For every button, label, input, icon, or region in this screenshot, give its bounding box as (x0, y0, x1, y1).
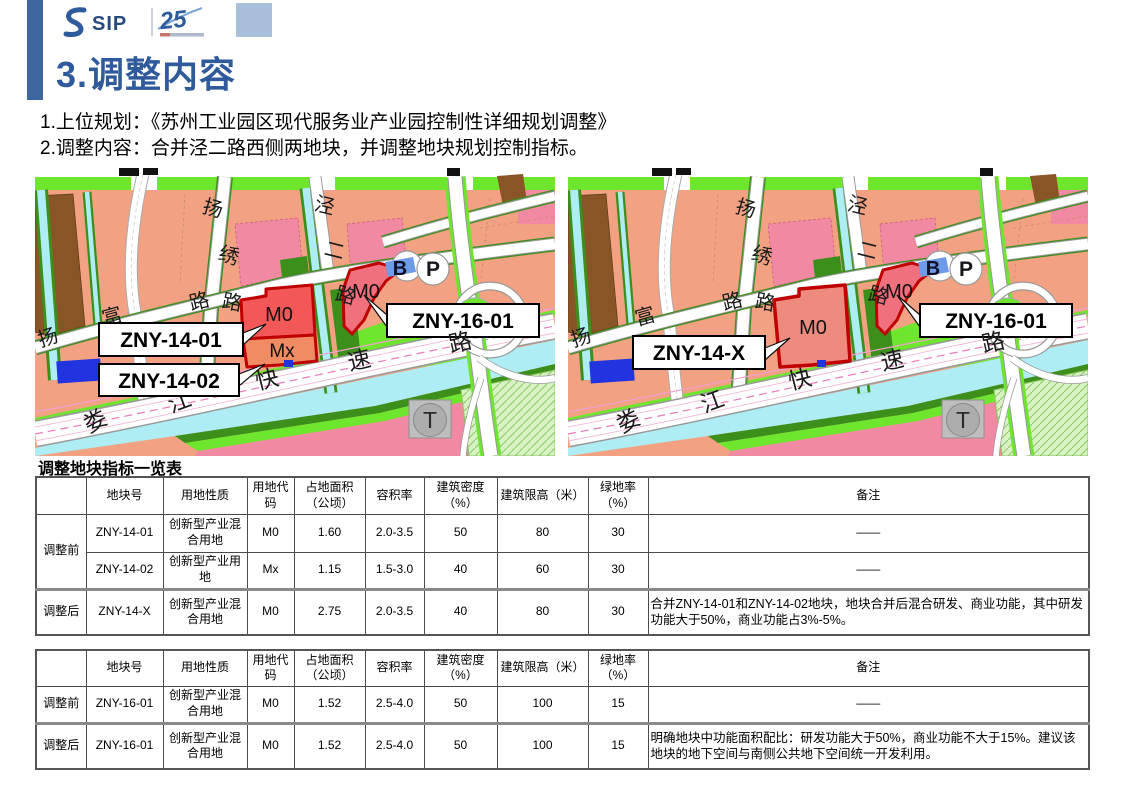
table-row: 调整前 ZNY-16-01 创新型产业混合用地 M0 1.52 2.5-4.0 … (36, 686, 1089, 723)
cell-parcel-id: ZNY-14-X (86, 589, 163, 635)
table-cell: 2.75 (294, 589, 365, 635)
col-header (36, 650, 86, 686)
table-cell: 15 (588, 723, 648, 769)
title-accent-bar (27, 0, 43, 100)
parcel-code-mx: Mx (269, 341, 295, 362)
table-cell: 创新型产业混合用地 (163, 589, 247, 635)
slide-page: M0 B P T ZNY-16-01 扬 绣 路 (0, 0, 1123, 794)
col-header: 用地性质 (163, 650, 247, 686)
col-header: 备注 (648, 650, 1089, 686)
table-cell: 2.5-4.0 (365, 723, 424, 769)
table-row: 调整后 ZNY-16-01 创新型产业混合用地 M0 1.52 2.5-4.0 … (36, 723, 1089, 769)
callout-zny-14-01-label: ZNY-14-01 (120, 329, 222, 352)
col-header (36, 477, 86, 514)
sip-logo-text: SIP (92, 13, 127, 35)
col-header: 容积率 (365, 477, 424, 514)
table-row: ZNY-14-02 创新型产业用地 Mx 1.15 1.5-3.0 40 60 … (36, 552, 1089, 589)
callout-zny-14-02-label: ZNY-14-02 (118, 370, 220, 393)
blue-utility-parcel (284, 360, 293, 367)
table-cell: 40 (424, 552, 497, 589)
col-header: 占地面积（公顷） (294, 650, 365, 686)
cell-remark: —— (648, 686, 1089, 723)
map-before-adjustment: M0 Mx ZNY-14-01 ZNY-14-02 (35, 168, 555, 456)
table-cell: 1.52 (294, 723, 365, 769)
table-cell: 30 (588, 514, 648, 552)
blue-canal-parcel (589, 358, 634, 383)
table-cell: 100 (497, 686, 588, 723)
table-cell: M0 (247, 723, 294, 769)
table-cell: 1.52 (294, 686, 365, 723)
cell-parcel-id: ZNY-16-01 (86, 723, 163, 769)
table-cell: 创新型产业混合用地 (163, 723, 247, 769)
cell-remark: —— (648, 552, 1089, 589)
table-cell: 15 (588, 686, 648, 723)
table-cell: 60 (497, 552, 588, 589)
col-header: 建筑密度（%） (424, 477, 497, 514)
table-cell: 30 (588, 552, 648, 589)
col-header: 绿地率（%） (588, 477, 648, 514)
parcel-code-m0: M0 (265, 304, 293, 326)
table-cell: 2.5-4.0 (365, 686, 424, 723)
table-cell: 80 (497, 514, 588, 552)
table-row: 调整后 ZNY-14-X 创新型产业混合用地 M0 2.75 2.0-3.5 4… (36, 589, 1089, 635)
table-cell: M0 (247, 514, 294, 552)
sip-logo: SIP 25 (54, 2, 244, 42)
table-cell: 1.60 (294, 514, 365, 552)
table-cell: 2.0-3.5 (365, 514, 424, 552)
table-cell: 40 (424, 589, 497, 635)
table-cell: 80 (497, 589, 588, 635)
col-header: 容积率 (365, 650, 424, 686)
logo-side-block (236, 3, 272, 37)
callout-zny-14-x-label: ZNY-14-X (653, 342, 745, 365)
col-header: 用地代码 (247, 477, 294, 514)
group-label: 调整前 (36, 514, 86, 589)
sip-swirl-icon (66, 10, 84, 35)
intro-text: 1.上位规划：《苏州工业园区现代服务业产业园控制性详细规划调整》 2.调整内容：… (40, 110, 616, 162)
cell-remark: 明确地块中功能面积配比：研发功能大于50%，商业功能不大于15%。建议该地块的地… (648, 723, 1089, 769)
col-header: 建筑限高（米） (497, 650, 588, 686)
intro-line-1: 1.上位规划：《苏州工业园区现代服务业产业园控制性详细规划调整》 (40, 110, 616, 136)
table-cell: M0 (247, 686, 294, 723)
table-cell: 1.15 (294, 552, 365, 589)
indicator-table-zny16: 地块号 用地性质 用地代码 占地面积（公顷） 容积率 建筑密度（%） 建筑限高（… (35, 649, 1090, 770)
group-label: 调整前 (36, 686, 86, 723)
indicator-table-zny14: 地块号 用地性质 用地代码 占地面积（公顷） 容积率 建筑密度（%） 建筑限高（… (35, 476, 1090, 636)
cell-parcel-id: ZNY-14-01 (86, 514, 163, 552)
col-header: 用地性质 (163, 477, 247, 514)
cell-remark: —— (648, 514, 1089, 552)
blue-utility-parcel (817, 360, 826, 367)
table-cell: 创新型产业用地 (163, 552, 247, 589)
col-header: 地块号 (86, 650, 163, 686)
col-header: 备注 (648, 477, 1089, 514)
table-cell: 2.0-3.5 (365, 589, 424, 635)
table-cell: 50 (424, 686, 497, 723)
page-title: 3.调整内容 (56, 46, 236, 98)
table-cell: 30 (588, 589, 648, 635)
group-label: 调整后 (36, 589, 86, 635)
parcel-code-m0: M0 (799, 317, 827, 339)
col-header: 建筑限高（米） (497, 477, 588, 514)
table-cell: Mx (247, 552, 294, 589)
cell-remark: 合并ZNY-14-01和ZNY-14-02地块，地块合并后混合研发、商业功能，其… (648, 589, 1089, 635)
table-row: 调整前 ZNY-14-01 创新型产业混合用地 M0 1.60 2.0-3.5 … (36, 514, 1089, 552)
table-cell: 50 (424, 723, 497, 769)
group-label: 调整后 (36, 723, 86, 769)
col-header: 地块号 (86, 477, 163, 514)
col-header: 建筑密度（%） (424, 650, 497, 686)
table-cell: 50 (424, 514, 497, 552)
table-cell: 100 (497, 723, 588, 769)
table-cell: 创新型产业混合用地 (163, 514, 247, 552)
blue-canal-parcel (56, 358, 101, 383)
table-cell: 1.5-3.0 (365, 552, 424, 589)
table-cell: M0 (247, 589, 294, 635)
table-cell: 创新型产业混合用地 (163, 686, 247, 723)
map-after-adjustment: M0 ZNY-14-X (568, 168, 1088, 456)
intro-line-2: 2.调整内容：合并泾二路西侧两地块，并调整地块规划控制指标。 (40, 136, 616, 162)
col-header: 占地面积（公顷） (294, 477, 365, 514)
anniversary-badge: 25 (158, 5, 189, 35)
cell-parcel-id: ZNY-14-02 (86, 552, 163, 589)
col-header: 绿地率（%） (588, 650, 648, 686)
col-header: 用地代码 (247, 650, 294, 686)
cell-parcel-id: ZNY-16-01 (86, 686, 163, 723)
